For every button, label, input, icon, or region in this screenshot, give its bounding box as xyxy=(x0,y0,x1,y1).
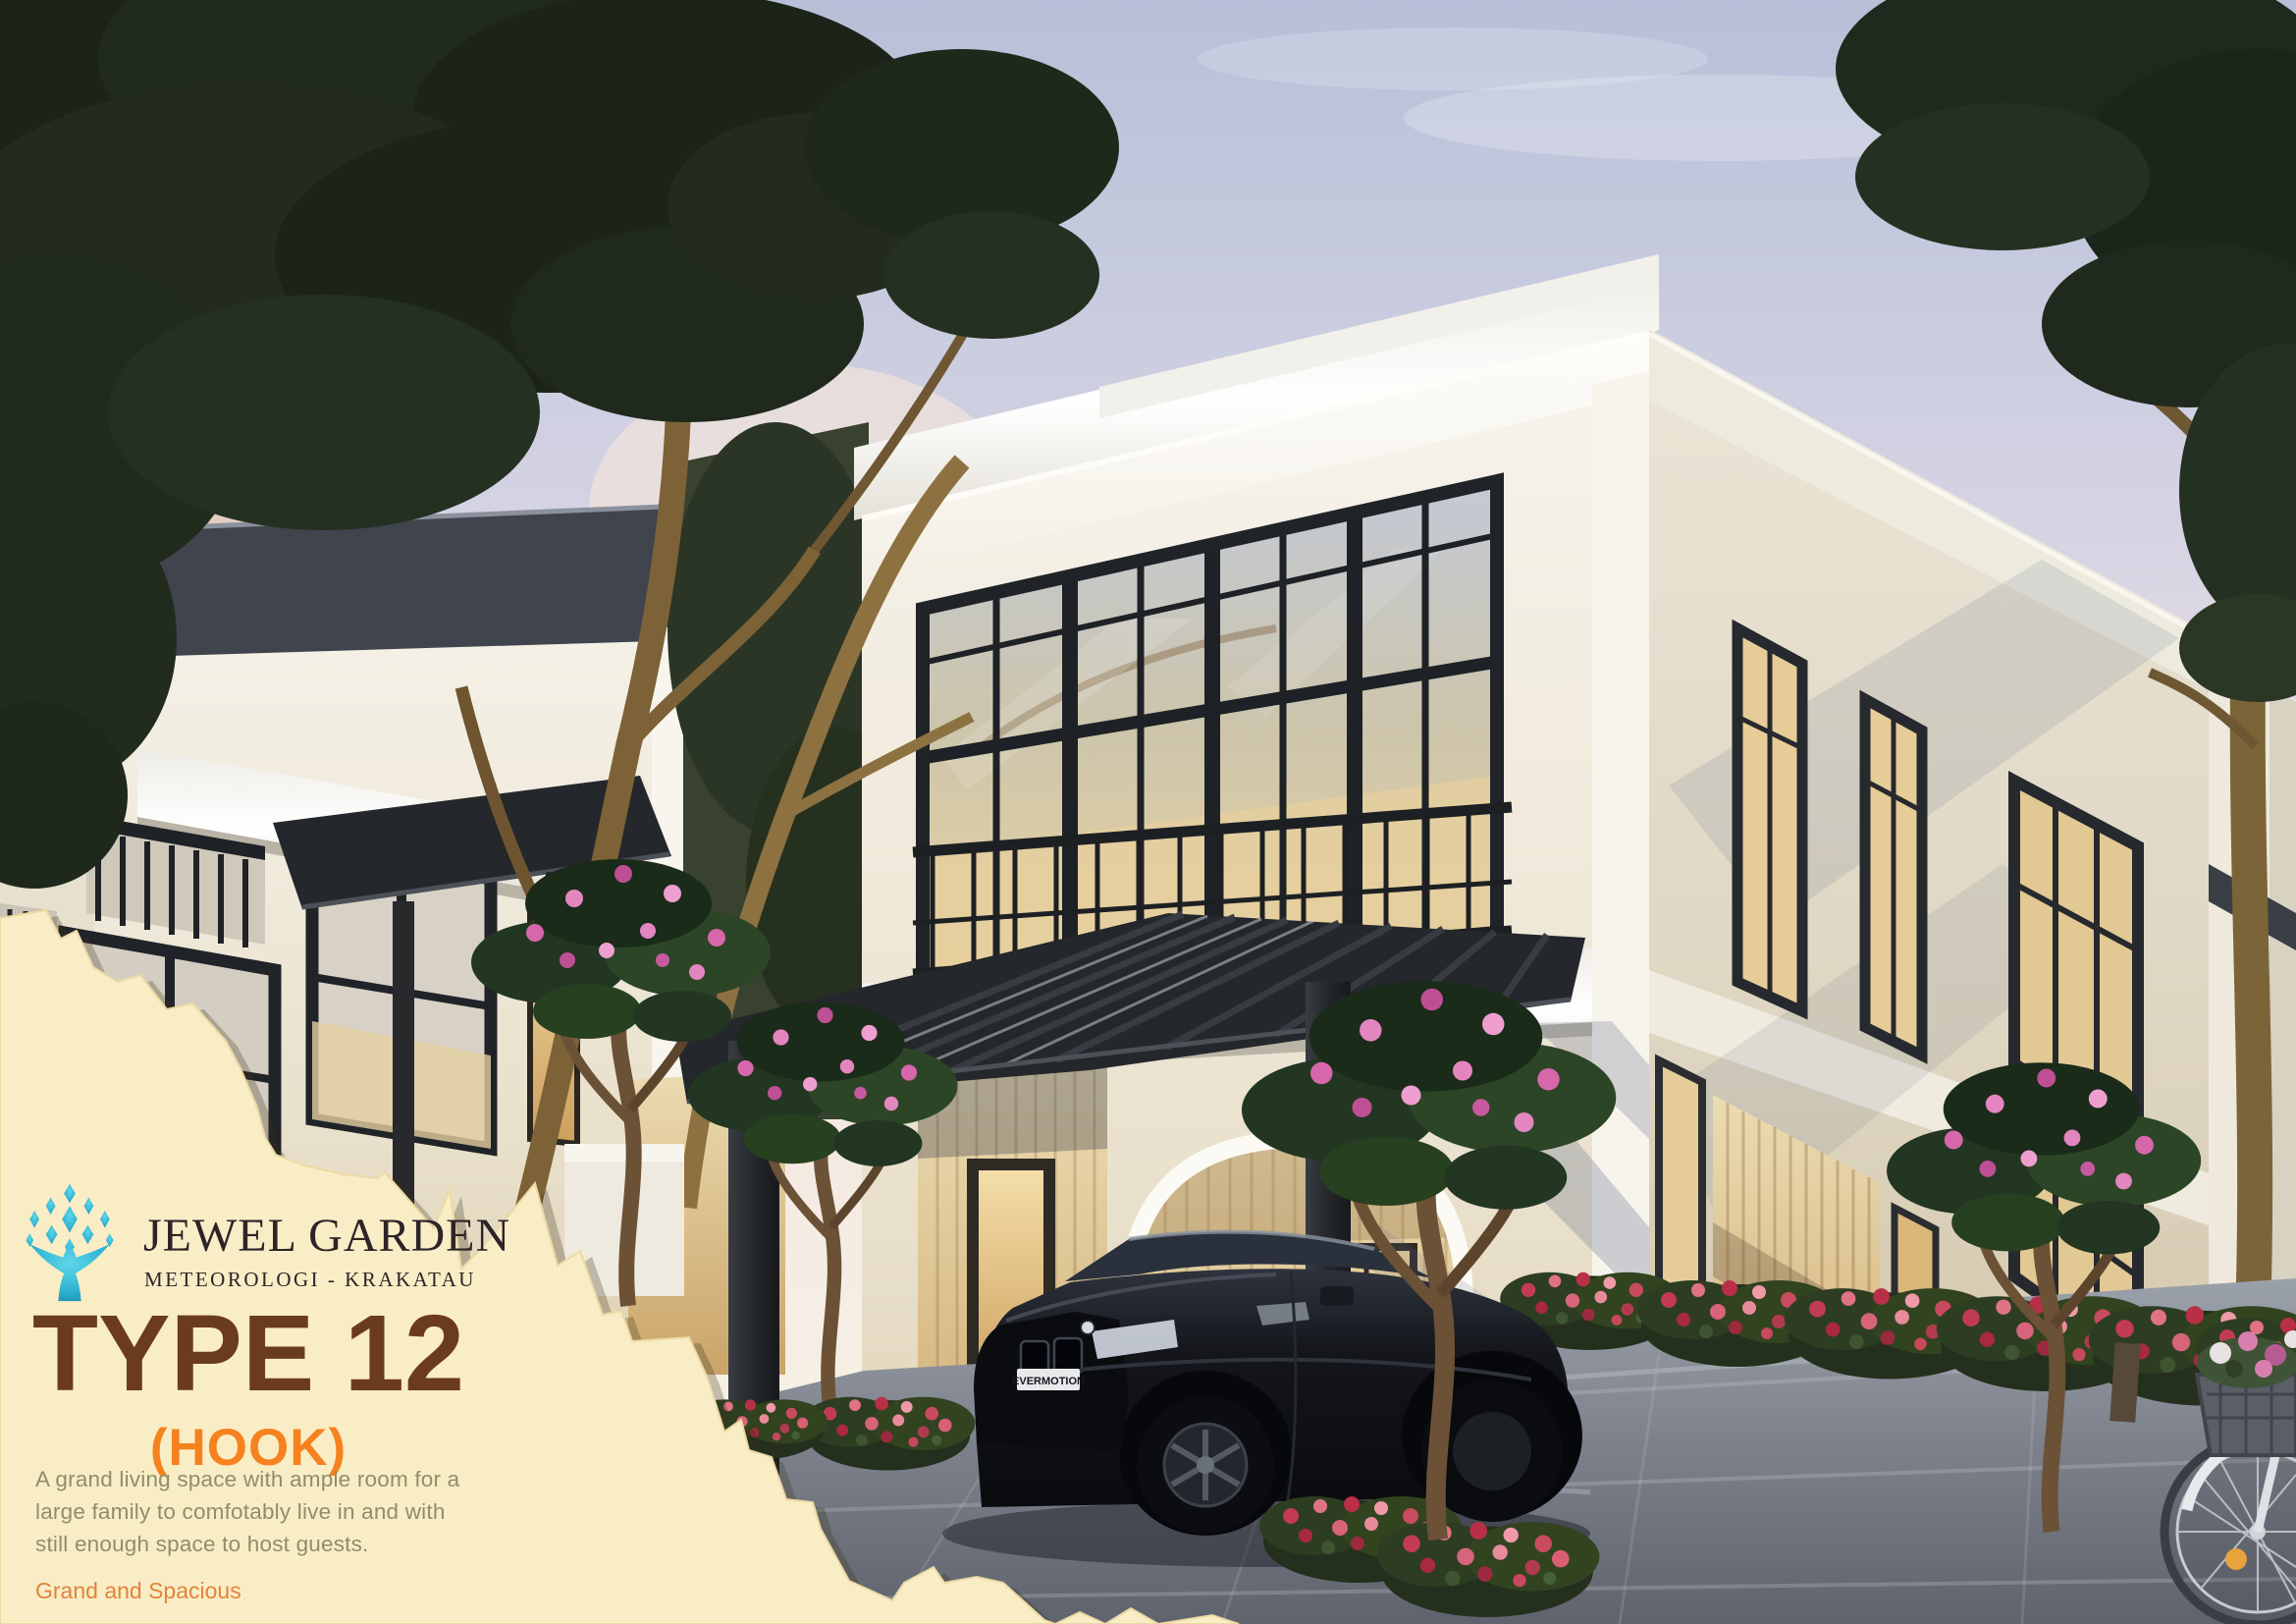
brand-location: METEOROLOGI - KRAKATAU xyxy=(143,1268,477,1292)
brand-name: JEWEL GARDEN xyxy=(143,1209,477,1263)
description-line: still enough space to host guests. xyxy=(35,1528,497,1560)
info-panel: JEWEL GARDEN METEOROLOGI - KRAKATAU TYPE… xyxy=(0,0,2296,1624)
listing-description: A grand living space with ample room for… xyxy=(35,1463,497,1560)
listing-title-block: TYPE 12 (HOOK) xyxy=(14,1300,483,1478)
description-line: A grand living space with ample room for… xyxy=(35,1463,497,1495)
brand-block: JEWEL GARDEN METEOROLOGI - KRAKATAU xyxy=(143,1209,477,1292)
description-line: large family to comfotably live in and w… xyxy=(35,1495,497,1528)
listing-tagline: Grand and Spacious xyxy=(35,1578,241,1604)
jewel-tree-icon xyxy=(20,1181,120,1305)
listing-title: TYPE 12 xyxy=(14,1300,483,1408)
poster-canvas: EVERMOTION xyxy=(0,0,2296,1624)
